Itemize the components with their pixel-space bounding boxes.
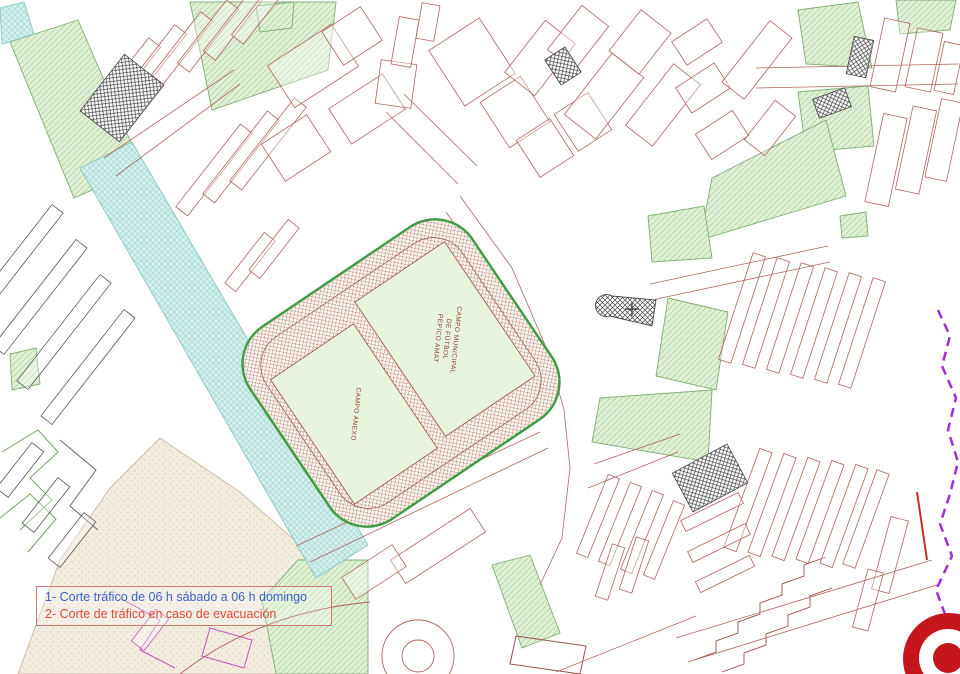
city-block <box>416 3 440 42</box>
park-area <box>840 212 868 238</box>
legend-box: 1- Corte tráfico de 06 h sábado a 06 h d… <box>36 586 332 626</box>
city-block <box>595 544 624 600</box>
roundabout <box>402 640 434 672</box>
city-block <box>391 508 486 583</box>
street-line <box>917 492 927 560</box>
park-area <box>492 555 560 648</box>
legend-line-traffic-cut: 1- Corte tráfico de 06 h sábado a 06 h d… <box>45 589 323 606</box>
roundabout <box>382 620 454 674</box>
map-line <box>722 588 832 672</box>
city-block <box>695 555 754 592</box>
city-block <box>853 569 884 631</box>
map-screenshot: CAMPO MUNICIPALDE FÚTBOLPEPICO AMATCAMPO… <box>0 0 960 674</box>
city-block <box>0 443 44 498</box>
boundary-dashed-line <box>936 310 958 652</box>
city-block <box>695 110 748 159</box>
city-block <box>41 309 135 424</box>
city-block <box>391 17 419 68</box>
park-area <box>656 298 728 390</box>
map-line <box>596 295 656 326</box>
park-area <box>648 206 712 262</box>
city-block <box>688 524 751 563</box>
park-area <box>592 390 712 462</box>
street-line <box>386 112 458 184</box>
city-block <box>672 19 722 65</box>
city-map: CAMPO MUNICIPALDE FÚTBOLPEPICO AMATCAMPO… <box>0 0 960 674</box>
city-block <box>17 274 111 389</box>
legend-line-evacuation: 2- Corte de tráfico en caso de evacuació… <box>45 606 323 623</box>
street-line <box>588 452 678 488</box>
street-line <box>556 616 696 672</box>
city-block <box>22 478 70 533</box>
city-block <box>870 18 910 92</box>
